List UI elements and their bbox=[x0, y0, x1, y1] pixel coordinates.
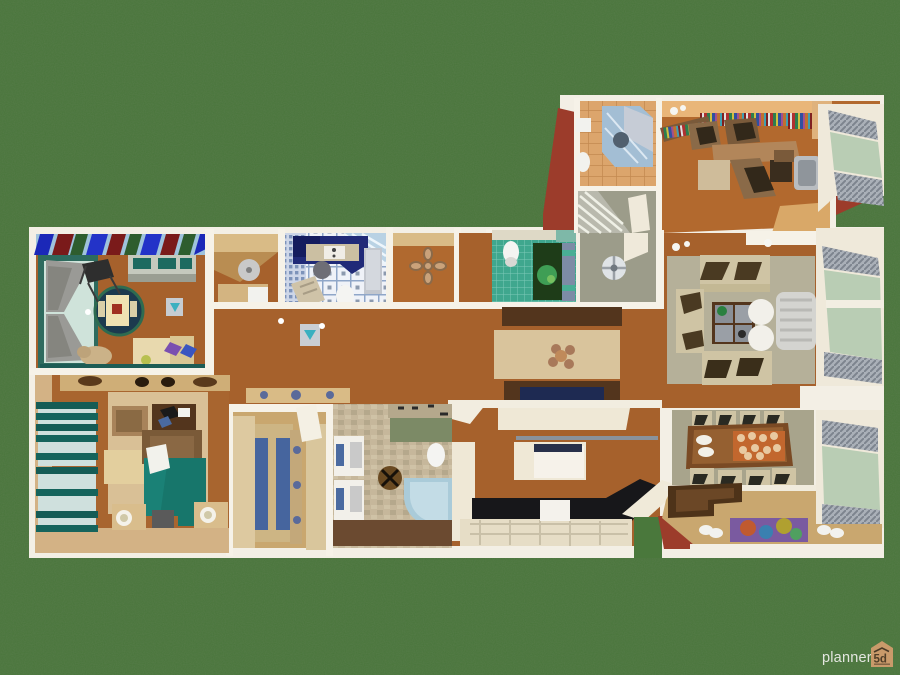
svg-text:planner: planner bbox=[822, 650, 872, 666]
